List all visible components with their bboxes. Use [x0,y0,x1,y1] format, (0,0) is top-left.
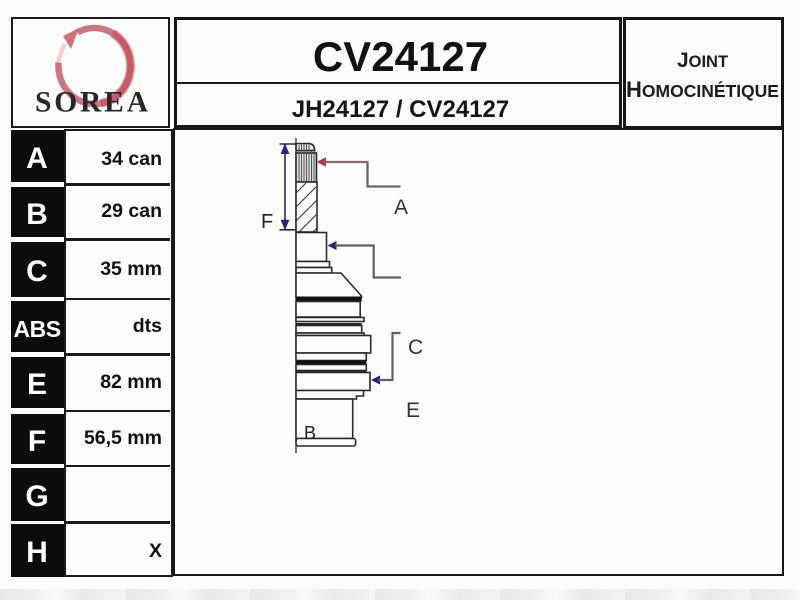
svg-text:C: C [408,336,423,359]
svg-text:B: B [304,423,316,443]
svg-text:E: E [406,399,420,422]
svg-text:A: A [394,196,408,219]
svg-text:SOREA: SOREA [35,87,149,119]
svg-text:F: F [261,211,273,233]
